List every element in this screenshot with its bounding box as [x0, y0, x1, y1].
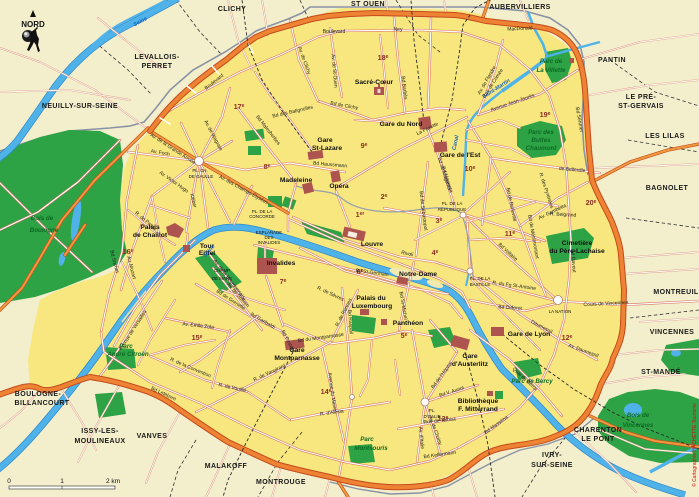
svg-text:MALAKOFF: MALAKOFF: [205, 463, 248, 470]
svg-text:MOULINEAUX: MOULINEAUX: [74, 438, 125, 445]
svg-text:Madeleine: Madeleine: [280, 177, 313, 184]
svg-text:Notre-Dame: Notre-Dame: [399, 271, 437, 278]
svg-text:LE PONT: LE PONT: [581, 436, 614, 443]
svg-text:PL. CH.: PL. CH.: [192, 168, 207, 173]
svg-text:MONTROUGE: MONTROUGE: [256, 479, 306, 486]
svg-text:Buttes: Buttes: [531, 137, 551, 144]
svg-text:LA NATION: LA NATION: [549, 309, 572, 314]
svg-text:NORD: NORD: [21, 20, 45, 29]
svg-text:Panthéon: Panthéon: [393, 320, 423, 327]
svg-text:ISSY-LES-: ISSY-LES-: [81, 428, 119, 435]
svg-text:BAGNOLET: BAGNOLET: [646, 185, 689, 192]
svg-text:INVALIDES: INVALIDES: [258, 240, 281, 245]
svg-text:PL. DE LA: PL. DE LA: [442, 201, 463, 206]
svg-text:St-Lazare: St-Lazare: [312, 145, 342, 152]
svg-text:Parc: Parc: [360, 436, 374, 443]
svg-text:BASTILLE: BASTILLE: [470, 282, 491, 287]
svg-text:ST-GERVAIS: ST-GERVAIS: [618, 103, 664, 110]
svg-text:AUBERVILLIERS: AUBERVILLIERS: [489, 4, 550, 11]
svg-text:IVRY-: IVRY-: [542, 452, 562, 459]
svg-text:Bibliothèque: Bibliothèque: [458, 398, 499, 405]
svg-text:© Cartographie HACHETTE Touris: © Cartographie HACHETTE Tourisme: [691, 403, 698, 487]
svg-text:La Villette: La Villette: [537, 67, 567, 74]
svg-text:de Chaillot: de Chaillot: [133, 232, 168, 239]
svg-text:BILLANCOURT: BILLANCOURT: [15, 400, 70, 407]
svg-text:Gare de l'Est: Gare de l'Est: [440, 152, 481, 159]
svg-text:du Père-Lachaise: du Père-Lachaise: [549, 248, 605, 255]
svg-text:Gare de Lyon: Gare de Lyon: [508, 331, 551, 338]
svg-text:Boulogne: Boulogne: [30, 227, 59, 234]
svg-text:Parc des: Parc des: [528, 129, 554, 136]
svg-text:Parc de: Parc de: [540, 58, 563, 65]
svg-text:VANVES: VANVES: [137, 433, 168, 440]
svg-text:LES LILAS: LES LILAS: [645, 133, 684, 140]
svg-text:Invalides: Invalides: [267, 260, 296, 267]
svg-text:Vincennes: Vincennes: [623, 422, 654, 429]
svg-text:Palais du: Palais du: [356, 295, 385, 302]
svg-text:ST OUEN: ST OUEN: [351, 1, 385, 8]
svg-text:RÉPUBLIQUE: RÉPUBLIQUE: [438, 207, 466, 212]
svg-text:d'Austerlitz: d'Austerlitz: [452, 361, 489, 368]
svg-text:NEUILLY-SUR-SEINE: NEUILLY-SUR-SEINE: [42, 103, 118, 110]
svg-text:BOULOGNE-: BOULOGNE-: [15, 391, 62, 398]
svg-text:CLICHY: CLICHY: [218, 6, 246, 13]
svg-text:1: 1: [60, 478, 64, 485]
svg-text:CHARENTON: CHARENTON: [574, 427, 622, 434]
svg-text:Cimetière: Cimetière: [562, 240, 593, 247]
svg-text:Gare du Nord: Gare du Nord: [380, 121, 423, 128]
svg-text:Chaumont: Chaumont: [526, 145, 558, 152]
svg-text:PL. DE LA: PL. DE LA: [470, 276, 491, 281]
svg-text:SUR-SEINE: SUR-SEINE: [531, 462, 573, 469]
svg-text:LE PRÉ-: LE PRÉ-: [626, 92, 657, 101]
svg-text:Opéra: Opéra: [329, 183, 349, 190]
svg-text:Montsouris: Montsouris: [354, 445, 388, 452]
svg-text:ST-MANDÉ: ST-MANDÉ: [641, 367, 681, 376]
svg-text:Montparnasse: Montparnasse: [274, 355, 320, 362]
svg-text:Gare: Gare: [317, 137, 333, 144]
svg-text:Bois de: Bois de: [627, 412, 650, 419]
svg-text:DE GAULLE: DE GAULLE: [189, 174, 214, 179]
svg-text:VINCENNES: VINCENNES: [650, 329, 694, 336]
svg-text:CONCORDE: CONCORDE: [249, 214, 275, 219]
svg-text:F. Mitterrand: F. Mitterrand: [458, 406, 498, 413]
svg-text:PL.: PL.: [429, 408, 436, 413]
svg-text:Boulevard: Boulevard: [323, 29, 346, 35]
svg-text:Bois de: Bois de: [31, 215, 54, 222]
svg-text:Sacré-Cœur: Sacré-Cœur: [355, 79, 394, 86]
svg-text:2 km: 2 km: [106, 478, 120, 485]
svg-text:PANTIN: PANTIN: [598, 57, 626, 64]
svg-text:PERRET: PERRET: [142, 63, 173, 70]
svg-text:0: 0: [7, 478, 11, 485]
svg-text:Gare: Gare: [462, 353, 478, 360]
svg-text:Ney: Ney: [394, 27, 403, 33]
svg-text:LEVALLOIS-: LEVALLOIS-: [134, 54, 179, 61]
svg-text:Louvre: Louvre: [361, 241, 384, 248]
svg-text:André Citroën: André Citroën: [106, 351, 148, 358]
svg-text:MONTREUIL: MONTREUIL: [653, 289, 699, 296]
svg-text:Luxembourg: Luxembourg: [352, 303, 393, 310]
